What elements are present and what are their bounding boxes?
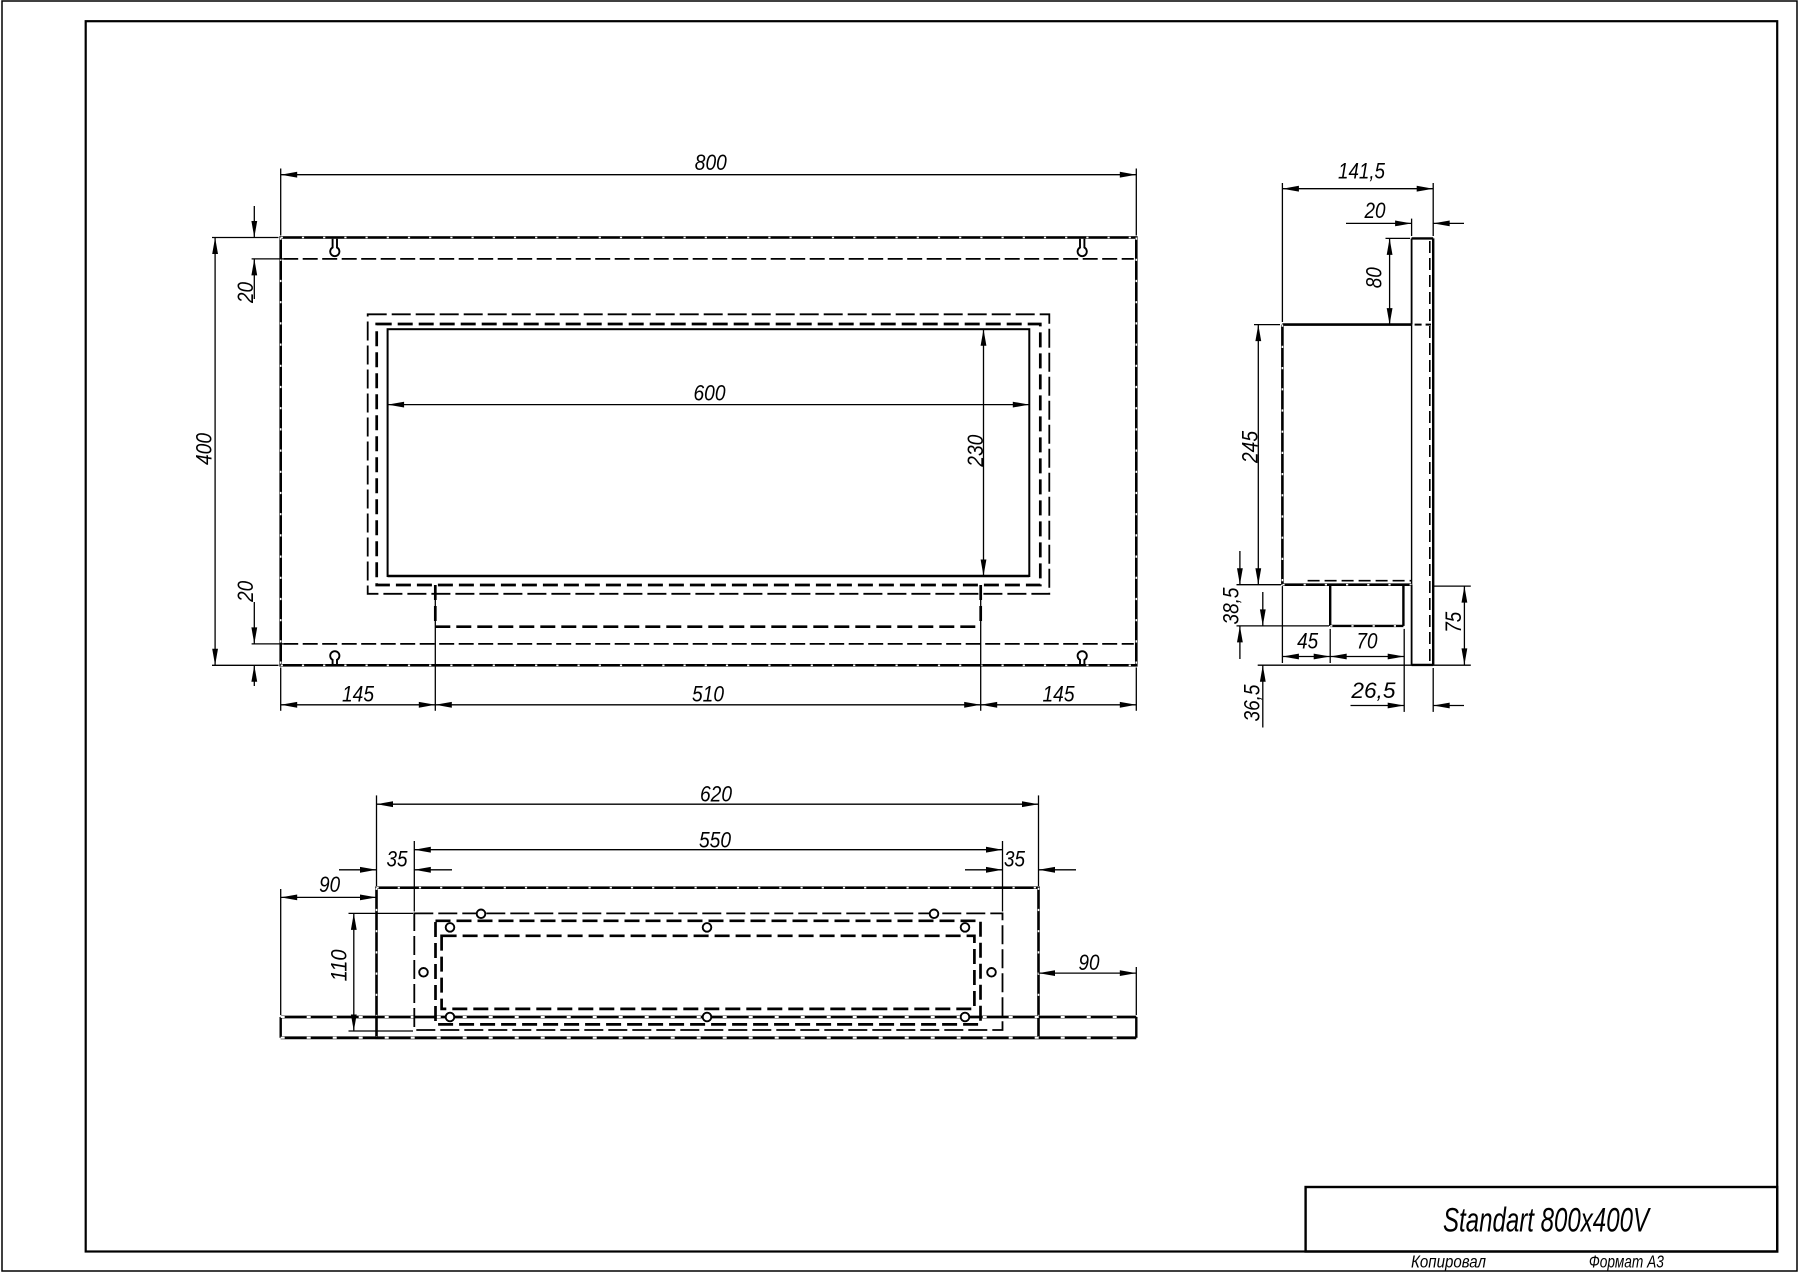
svg-text:20: 20	[233, 282, 258, 304]
svg-text:230: 230	[963, 434, 988, 467]
svg-text:145: 145	[1043, 682, 1075, 707]
svg-text:245: 245	[1238, 431, 1263, 464]
svg-text:36,5: 36,5	[1240, 684, 1265, 721]
svg-text:70: 70	[1357, 629, 1378, 654]
svg-text:800: 800	[695, 150, 727, 175]
svg-text:90: 90	[1079, 950, 1100, 975]
svg-text:141,5: 141,5	[1338, 159, 1385, 184]
svg-text:620: 620	[700, 781, 732, 806]
svg-text:110: 110	[327, 949, 352, 981]
svg-text:90: 90	[319, 872, 340, 897]
svg-text:35: 35	[1004, 847, 1025, 872]
svg-text:26,5: 26,5	[1350, 678, 1395, 703]
svg-text:75: 75	[1441, 611, 1466, 632]
svg-text:35: 35	[387, 847, 408, 872]
svg-text:400: 400	[192, 433, 217, 465]
svg-text:80: 80	[1362, 267, 1387, 288]
svg-text:510: 510	[692, 682, 724, 707]
svg-text:600: 600	[694, 380, 726, 405]
svg-text:20: 20	[1364, 198, 1386, 223]
svg-text:20: 20	[233, 580, 258, 602]
svg-text:550: 550	[699, 828, 731, 853]
svg-text:Standart 800x400V: Standart 800x400V	[1443, 1202, 1651, 1240]
svg-text:Копировал: Копировал	[1411, 1252, 1486, 1272]
svg-text:Формат А3: Формат А3	[1589, 1252, 1664, 1272]
svg-text:145: 145	[342, 682, 374, 707]
svg-text:38,5: 38,5	[1219, 587, 1244, 624]
svg-text:45: 45	[1297, 629, 1318, 654]
